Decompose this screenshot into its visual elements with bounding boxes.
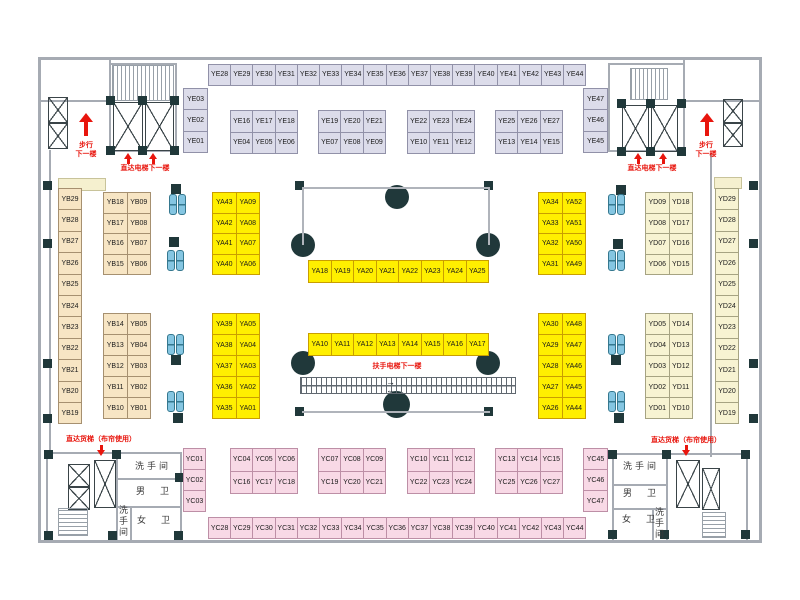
- stall-YA22: YA22: [398, 260, 422, 283]
- stall-YA16: YA16: [443, 333, 467, 356]
- column-icon: [169, 237, 179, 247]
- seat-icon: [167, 250, 184, 271]
- stall-YE35: YE35: [363, 64, 386, 86]
- wall: [746, 453, 748, 540]
- freight-down-arrow-head: [682, 450, 690, 456]
- stall-YC43: YC43: [541, 517, 564, 539]
- walk-up-arrow-head: [79, 113, 93, 122]
- stall-YD09: YD09: [645, 192, 670, 214]
- stall-YE25: YE25: [495, 110, 518, 133]
- stall-YB29: YB29: [58, 188, 82, 210]
- stall-YE10: YE10: [407, 132, 430, 155]
- elevator-up-arrow: [124, 153, 132, 164]
- column-icon: [749, 239, 758, 248]
- stall-YC15: YC15: [540, 448, 563, 472]
- walk-up-arrow-stem: [84, 122, 88, 136]
- stall-YC46: YC46: [583, 469, 608, 491]
- wall: [608, 63, 610, 152]
- stall-YC42: YC42: [519, 517, 542, 539]
- stall-YB09: YB09: [127, 192, 152, 214]
- elevator-icon: [48, 97, 68, 123]
- stall-YA35: YA35: [212, 397, 237, 419]
- stall-YE12: YE12: [452, 132, 475, 155]
- seat-half-icon: [167, 334, 175, 355]
- stall-YE26: YE26: [517, 110, 540, 133]
- column-icon: [646, 147, 655, 156]
- column-icon: [614, 413, 624, 423]
- seat-half-icon: [608, 391, 616, 412]
- stall-YC08: YC08: [340, 448, 363, 472]
- elevator-up-arrow: [149, 153, 157, 164]
- mens-room-label: 男 卫: [130, 487, 178, 496]
- stall-YC21: YC21: [363, 471, 386, 495]
- elevator-icon: [113, 102, 143, 151]
- stall-YE30: YE30: [252, 64, 275, 86]
- stall-YE28: YE28: [208, 64, 231, 86]
- stall-YA18: YA18: [308, 260, 332, 283]
- stall-YB23: YB23: [58, 316, 82, 338]
- stall-YC04: YC04: [230, 448, 253, 472]
- stall-YE46: YE46: [583, 109, 608, 131]
- column-icon: [170, 96, 179, 105]
- stall-YE01: YE01: [183, 131, 208, 153]
- stall-YB03: YB03: [127, 355, 152, 377]
- pillar-icon: [383, 391, 410, 418]
- stall-YA32: YA32: [538, 233, 563, 255]
- void-edge-line: [302, 411, 490, 413]
- stall-YA09: YA09: [236, 192, 261, 214]
- stall-YC47: YC47: [583, 490, 608, 512]
- elevator-icon: [723, 123, 743, 147]
- seat-half-icon: [617, 334, 625, 355]
- stairs-icon: [630, 68, 668, 100]
- stall-YA03: YA03: [236, 355, 261, 377]
- column-icon: [106, 96, 115, 105]
- stall-YB26: YB26: [58, 252, 82, 274]
- column-icon: [43, 239, 52, 248]
- stall-YC34: YC34: [341, 517, 364, 539]
- stall-YD10: YD10: [669, 397, 694, 419]
- stall-YE09: YE09: [363, 132, 386, 155]
- stall-YD24: YD24: [715, 295, 739, 317]
- elevator-up-arrow-stem: [127, 159, 130, 164]
- stall-YE11: YE11: [429, 132, 452, 155]
- seat-icon: [167, 391, 184, 412]
- stall-YA51: YA51: [562, 213, 587, 235]
- stall-YE42: YE42: [519, 64, 542, 86]
- stall-YD07: YD07: [645, 233, 670, 255]
- womens-room-label: 女 卫: [132, 516, 178, 525]
- stall-YE38: YE38: [430, 64, 453, 86]
- wall: [175, 63, 177, 152]
- stall-YC11: YC11: [429, 448, 452, 472]
- stall-YE13: YE13: [495, 132, 518, 155]
- stall-YB22: YB22: [58, 338, 82, 360]
- stall-YE36: YE36: [386, 64, 409, 86]
- stall-YB18: YB18: [103, 192, 128, 214]
- elevator-up-arrow-stem: [662, 159, 665, 164]
- stall-YA34: YA34: [538, 192, 563, 214]
- stall-YA05: YA05: [236, 313, 261, 335]
- stall-YD02: YD02: [645, 376, 670, 398]
- stall-YD11: YD11: [669, 376, 694, 398]
- stall-YC06: YC06: [275, 448, 298, 472]
- stall-YE20: YE20: [340, 110, 363, 133]
- stall-YD16: YD16: [669, 233, 694, 255]
- stall-YC41: YC41: [497, 517, 520, 539]
- stall-YE17: YE17: [252, 110, 275, 133]
- stall-YA26: YA26: [538, 397, 563, 419]
- stall-YC01: YC01: [183, 448, 206, 470]
- stall-YB15: YB15: [103, 254, 128, 276]
- stall-YE21: YE21: [363, 110, 386, 133]
- stall-YB25: YB25: [58, 274, 82, 296]
- restroom-label: 洗手间: [128, 462, 178, 471]
- stall-YA10: YA10: [308, 333, 332, 356]
- elevator-icon: [48, 123, 68, 149]
- stall-YC22: YC22: [407, 471, 430, 495]
- stall-YA19: YA19: [331, 260, 355, 283]
- stall-YC40: YC40: [474, 517, 497, 539]
- walk-up-arrow-head: [700, 113, 714, 122]
- wall: [38, 540, 762, 543]
- wall: [38, 57, 762, 60]
- stall-YD01: YD01: [645, 397, 670, 419]
- elevator-up-arrow: [634, 153, 642, 164]
- seat-half-icon: [176, 334, 184, 355]
- stall-YA52: YA52: [562, 192, 587, 214]
- stall-YD27: YD27: [715, 231, 739, 253]
- stall-YC16: YC16: [230, 471, 253, 495]
- column-icon: [173, 413, 183, 423]
- walk-up-arrow: [79, 113, 93, 136]
- stall-YE18: YE18: [275, 110, 298, 133]
- stall-YD25: YD25: [715, 274, 739, 296]
- stall-YD18: YD18: [669, 192, 694, 214]
- mens-room-label: 男 卫: [618, 489, 664, 498]
- seat-icon: [167, 334, 184, 355]
- wall: [118, 478, 182, 480]
- stall-YE31: YE31: [275, 64, 298, 86]
- column-icon: [106, 146, 115, 155]
- stall-YC20: YC20: [340, 471, 363, 495]
- escalator-icon: [300, 377, 516, 394]
- stall-YE47: YE47: [583, 88, 608, 110]
- column-icon: [662, 450, 671, 459]
- stall-YE45: YE45: [583, 131, 608, 153]
- stall-YE19: YE19: [318, 110, 341, 133]
- wall: [609, 63, 684, 65]
- stall-YC03: YC03: [183, 490, 206, 512]
- stall-YE39: YE39: [452, 64, 475, 86]
- stall-YE05: YE05: [252, 132, 275, 155]
- stall-YA40: YA40: [212, 254, 237, 276]
- stall-YC44: YC44: [563, 517, 586, 539]
- stall-YA45: YA45: [562, 376, 587, 398]
- stall-YD23: YD23: [715, 316, 739, 338]
- void-edge-line: [302, 187, 490, 189]
- stall-YE32: YE32: [297, 64, 320, 86]
- wall: [38, 57, 41, 543]
- stall-YC14: YC14: [517, 448, 540, 472]
- stall-YB02: YB02: [127, 376, 152, 398]
- wall: [612, 453, 748, 455]
- seat-half-icon: [608, 334, 616, 355]
- column-icon: [43, 414, 52, 423]
- elevator-icon: [622, 105, 649, 152]
- stall-YD21: YD21: [715, 359, 739, 381]
- direct-elevator-note: 直达电梯下一楼: [612, 165, 692, 174]
- stall-YC26: YC26: [517, 471, 540, 495]
- stall-YA47: YA47: [562, 334, 587, 356]
- seat-half-icon: [617, 391, 625, 412]
- stall-YE07: YE07: [318, 132, 341, 155]
- stall-YB17: YB17: [103, 213, 128, 235]
- elevator-up-arrow-stem: [152, 159, 155, 164]
- stall-YB16: YB16: [103, 233, 128, 255]
- stall-YD28: YD28: [715, 209, 739, 231]
- column-icon: [611, 355, 621, 365]
- stall-YD20: YD20: [715, 381, 739, 403]
- stall-YE33: YE33: [319, 64, 342, 86]
- walk-up-arrow-stem: [705, 122, 709, 136]
- wall: [666, 453, 668, 540]
- stall-YA42: YA42: [212, 213, 237, 235]
- walk-up-arrow: [700, 113, 714, 136]
- column-icon: [608, 450, 617, 459]
- stall-YC27: YC27: [540, 471, 563, 495]
- stall-YC09: YC09: [363, 448, 386, 472]
- column-icon: [43, 359, 52, 368]
- stall-YB08: YB08: [127, 213, 152, 235]
- stall-YA44: YA44: [562, 397, 587, 419]
- stall-YE15: YE15: [540, 132, 563, 155]
- column-icon: [677, 99, 686, 108]
- stall-YC32: YC32: [297, 517, 320, 539]
- stall-YC33: YC33: [319, 517, 342, 539]
- stall-YA49: YA49: [562, 254, 587, 276]
- stall-YB01: YB01: [127, 397, 152, 419]
- stall-YD04: YD04: [645, 334, 670, 356]
- stall-YC38: YC38: [430, 517, 453, 539]
- column-icon: [174, 531, 183, 540]
- stall-YD03: YD03: [645, 355, 670, 377]
- stairs-icon: [702, 512, 726, 538]
- stall-YA33: YA33: [538, 213, 563, 235]
- column-icon: [170, 146, 179, 155]
- stall-YB06: YB06: [127, 254, 152, 276]
- stall-YE23: YE23: [429, 110, 452, 133]
- stall-YA08: YA08: [236, 213, 261, 235]
- stall-YC29: YC29: [230, 517, 253, 539]
- stall-YB20: YB20: [58, 381, 82, 403]
- stall-YC02: YC02: [183, 469, 206, 491]
- wall: [710, 153, 712, 457]
- seat-half-icon: [167, 250, 175, 271]
- freight-down-arrow: [682, 445, 690, 456]
- stall-YD22: YD22: [715, 338, 739, 360]
- restroom-label: 洗手间: [616, 462, 666, 471]
- stall-YE06: YE06: [275, 132, 298, 155]
- stall-YA27: YA27: [538, 376, 563, 398]
- stall-YE41: YE41: [497, 64, 520, 86]
- restroom-label: 洗手间: [118, 505, 127, 538]
- stall-YA01: YA01: [236, 397, 261, 419]
- stall-YE04: YE04: [230, 132, 253, 155]
- void-edge-line: [488, 187, 490, 245]
- stall-YC28: YC28: [208, 517, 231, 539]
- elevator-icon: [68, 464, 90, 487]
- stall-YA31: YA31: [538, 254, 563, 276]
- column-icon: [749, 414, 758, 423]
- stall-YE44: YE44: [563, 64, 586, 86]
- stall-YA36: YA36: [212, 376, 237, 398]
- stall-YE22: YE22: [407, 110, 430, 133]
- walk-down-note: 步行 下一楼: [686, 142, 726, 160]
- stall-YC35: YC35: [363, 517, 386, 539]
- stall-YB05: YB05: [127, 313, 152, 335]
- elevator-up-arrow: [659, 153, 667, 164]
- stall-YA43: YA43: [212, 192, 237, 214]
- stall-YA02: YA02: [236, 376, 261, 398]
- elevator-icon: [702, 468, 720, 510]
- stall-YA04: YA04: [236, 334, 261, 356]
- seat-icon: [608, 334, 625, 355]
- stall-YA46: YA46: [562, 355, 587, 377]
- stall-YB10: YB10: [103, 397, 128, 419]
- seat-half-icon: [608, 250, 616, 271]
- elevator-icon: [94, 460, 116, 508]
- freight-down-arrow: [97, 445, 105, 456]
- stall-YD13: YD13: [669, 334, 694, 356]
- stall-YD17: YD17: [669, 213, 694, 235]
- stall-YA17: YA17: [466, 333, 490, 356]
- wall: [46, 452, 48, 540]
- stall-YB12: YB12: [103, 355, 128, 377]
- seat-half-icon: [169, 194, 177, 215]
- stall-YC24: YC24: [452, 471, 475, 495]
- column-icon: [608, 530, 617, 539]
- stall-YD15: YD15: [669, 254, 694, 276]
- column-icon: [138, 96, 147, 105]
- seat-half-icon: [176, 250, 184, 271]
- stall-YE37: YE37: [408, 64, 431, 86]
- stall-YB27: YB27: [58, 231, 82, 253]
- stall-YB04: YB04: [127, 334, 152, 356]
- stall-YE43: YE43: [541, 64, 564, 86]
- stairs-icon: [58, 508, 88, 536]
- column-icon: [108, 531, 117, 540]
- stall-YC25: YC25: [495, 471, 518, 495]
- column-icon: [749, 181, 758, 190]
- freight-elevator-note: 直达货梯（布帘使用）: [53, 436, 149, 445]
- escalator-direction-arrow-icon: ←: [386, 386, 395, 395]
- stall-YE02: YE02: [183, 109, 208, 131]
- seat-half-icon: [617, 194, 625, 215]
- stall-YC12: YC12: [452, 448, 475, 472]
- restroom-label: 洗手间: [654, 507, 663, 540]
- stall-YE14: YE14: [517, 132, 540, 155]
- column-icon: [741, 450, 750, 459]
- stall-YD14: YD14: [669, 313, 694, 335]
- stall-YA07: YA07: [236, 233, 261, 255]
- wall: [612, 453, 614, 540]
- stall-YA12: YA12: [353, 333, 377, 356]
- stall-YD05: YD05: [645, 313, 670, 335]
- seat-half-icon: [167, 391, 175, 412]
- column-icon: [138, 146, 147, 155]
- seat-half-icon: [608, 194, 616, 215]
- stall-YA29: YA29: [538, 334, 563, 356]
- stall-YE34: YE34: [341, 64, 364, 86]
- column-icon: [617, 99, 626, 108]
- stall-YD08: YD08: [645, 213, 670, 235]
- stall-YC36: YC36: [386, 517, 409, 539]
- stall-YC13: YC13: [495, 448, 518, 472]
- stall-YA11: YA11: [331, 333, 355, 356]
- elevator-icon: [723, 99, 743, 123]
- stall-YC19: YC19: [318, 471, 341, 495]
- stall-YC07: YC07: [318, 448, 341, 472]
- stall-YA24: YA24: [443, 260, 467, 283]
- stall-YA37: YA37: [212, 355, 237, 377]
- stall-YA25: YA25: [466, 260, 490, 283]
- stall-YC17: YC17: [252, 471, 275, 495]
- seat-half-icon: [178, 194, 186, 215]
- seat-icon: [608, 250, 625, 271]
- elevator-icon: [676, 460, 700, 508]
- seat-icon: [608, 194, 625, 215]
- stall-YC37: YC37: [408, 517, 431, 539]
- stall-YB28: YB28: [58, 209, 82, 231]
- stall-YB19: YB19: [58, 402, 82, 424]
- stall-YE27: YE27: [540, 110, 563, 133]
- stall-YC10: YC10: [407, 448, 430, 472]
- stall-YB13: YB13: [103, 334, 128, 356]
- stall-YE08: YE08: [340, 132, 363, 155]
- floor-plan: →← YE28YE29YE30YE31YE32YE33YE34YE35YE36Y…: [0, 0, 800, 600]
- stall-YA20: YA20: [353, 260, 377, 283]
- void-edge-line: [302, 187, 304, 245]
- column-icon: [43, 181, 52, 190]
- wall: [612, 484, 668, 486]
- escalator-note: 扶手电梯下一楼: [352, 363, 442, 372]
- direct-elevator-note: 直达电梯下一楼: [105, 165, 185, 174]
- stall-YE40: YE40: [474, 64, 497, 86]
- column-icon: [44, 531, 53, 540]
- stall-YC23: YC23: [429, 471, 452, 495]
- column-icon: [112, 450, 121, 459]
- stall-YE24: YE24: [452, 110, 475, 133]
- column-icon: [749, 359, 758, 368]
- stall-YD26: YD26: [715, 252, 739, 274]
- seat-half-icon: [176, 391, 184, 412]
- column-icon: [741, 530, 750, 539]
- stall-YA14: YA14: [398, 333, 422, 356]
- stall-YB11: YB11: [103, 376, 128, 398]
- stall-YE29: YE29: [230, 64, 253, 86]
- stall-YC05: YC05: [252, 448, 275, 472]
- wall: [759, 57, 762, 543]
- stall-YA06: YA06: [236, 254, 261, 276]
- stall-YC39: YC39: [452, 517, 475, 539]
- seat-icon: [608, 391, 625, 412]
- stall-YA48: YA48: [562, 313, 587, 335]
- stall-YA38: YA38: [212, 334, 237, 356]
- column-icon: [44, 450, 53, 459]
- stall-YA15: YA15: [421, 333, 445, 356]
- wall: [49, 150, 51, 457]
